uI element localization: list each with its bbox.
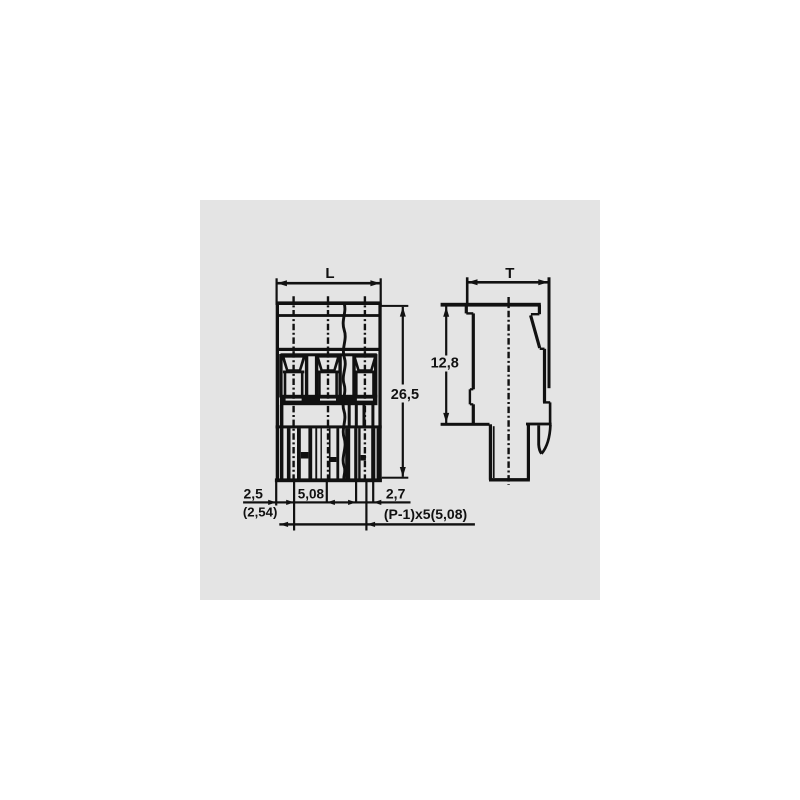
svg-text:(2,54): (2,54) (243, 504, 277, 519)
svg-text:2,5: 2,5 (244, 485, 264, 501)
svg-text:26,5: 26,5 (391, 387, 419, 403)
svg-text:12,8: 12,8 (431, 356, 459, 372)
svg-text:2,7: 2,7 (386, 485, 406, 501)
svg-text:(P-1)x5(5,08): (P-1)x5(5,08) (384, 506, 467, 522)
svg-text:L: L (325, 265, 334, 282)
svg-text:T: T (505, 265, 514, 282)
svg-text:5,08: 5,08 (298, 487, 325, 502)
